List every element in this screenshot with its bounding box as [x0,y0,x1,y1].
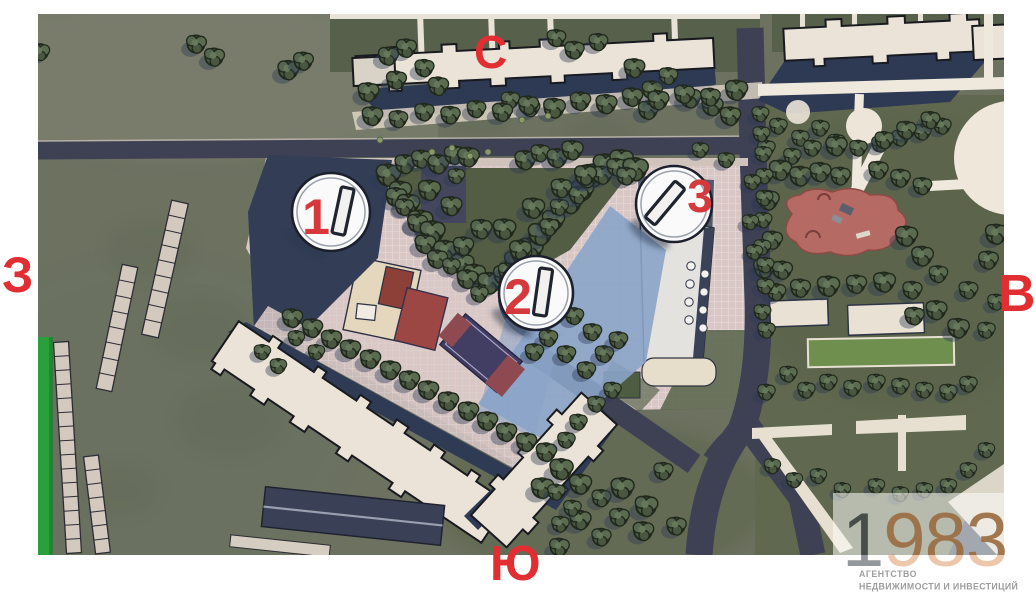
svg-text:2: 2 [504,269,532,325]
svg-text:3: 3 [687,170,713,222]
svg-text:АГЕНТСТВО: АГЕНТСТВО [859,569,917,579]
svg-text:НЕДВИЖИМОСТИ И ИНВЕСТИЦИЙ: НЕДВИЖИМОСТИ И ИНВЕСТИЦИЙ [859,581,1018,592]
svg-text:З: З [2,247,33,303]
svg-text:Ю: Ю [490,537,541,591]
svg-text:С: С [474,26,507,78]
svg-text:1: 1 [302,189,330,245]
svg-text:В: В [998,265,1036,323]
